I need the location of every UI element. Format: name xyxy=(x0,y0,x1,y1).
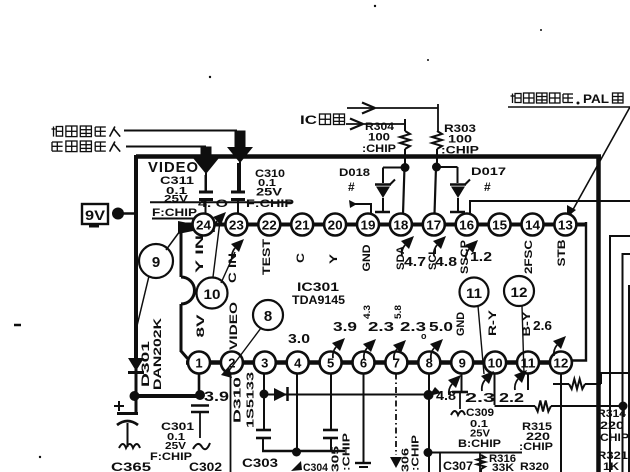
svg-text:1: 1 xyxy=(195,356,202,371)
svg-text:C304: C304 xyxy=(303,462,329,472)
svg-text:C: C xyxy=(295,253,307,263)
svg-text:9: 9 xyxy=(152,254,160,271)
svg-text:3: 3 xyxy=(261,356,268,371)
svg-text:24: 24 xyxy=(196,218,212,233)
svg-text::CHIP: :CHIP xyxy=(519,441,553,453)
svg-text:18: 18 xyxy=(393,218,408,233)
svg-text:5.8: 5.8 xyxy=(393,305,403,319)
svg-text:4.8: 4.8 xyxy=(435,255,457,269)
svg-text:17: 17 xyxy=(426,218,441,233)
svg-text:20: 20 xyxy=(328,218,343,233)
svg-text:4.7: 4.7 xyxy=(404,255,426,269)
svg-text:15: 15 xyxy=(492,218,507,233)
svg-text:11: 11 xyxy=(466,285,482,301)
svg-text:23: 23 xyxy=(229,218,244,233)
svg-text:10: 10 xyxy=(204,286,221,302)
svg-text:C307: C307 xyxy=(443,459,473,472)
svg-text:21: 21 xyxy=(295,218,310,233)
svg-text:Y IN: Y IN xyxy=(194,235,206,273)
svg-text:D017: D017 xyxy=(471,166,506,178)
svg-text:3.0: 3.0 xyxy=(288,332,310,346)
svg-text:2.6: 2.6 xyxy=(533,319,552,333)
svg-text:R-Y: R-Y xyxy=(487,309,499,336)
svg-text:2.3: 2.3 xyxy=(368,320,394,334)
svg-text::CHIP: :CHIP xyxy=(411,435,422,471)
svg-text:GND: GND xyxy=(361,244,373,271)
svg-text:F:CHIP: F:CHIP xyxy=(150,451,192,463)
svg-text:2FSC: 2FSC xyxy=(523,240,535,274)
svg-text:3.9: 3.9 xyxy=(333,320,357,334)
svg-text:D018: D018 xyxy=(339,167,370,179)
svg-text:16: 16 xyxy=(459,218,474,233)
svg-text:3.9: 3.9 xyxy=(204,389,229,404)
svg-text:10: 10 xyxy=(488,356,503,371)
svg-text:4: 4 xyxy=(294,356,302,371)
svg-text:14: 14 xyxy=(525,218,541,233)
svg-text:o: o xyxy=(421,331,427,341)
svg-text:1K: 1K xyxy=(603,461,619,472)
svg-text:12: 12 xyxy=(553,356,568,371)
svg-text:2.3: 2.3 xyxy=(465,390,495,405)
svg-text:C302: C302 xyxy=(189,460,222,472)
svg-text::CHIP: :CHIP xyxy=(362,143,396,155)
svg-text:C303: C303 xyxy=(242,456,278,470)
svg-text:R314: R314 xyxy=(597,408,627,420)
svg-text:DAN202K: DAN202K xyxy=(152,318,164,390)
svg-text:D310: D310 xyxy=(233,376,244,423)
svg-text:D301: D301 xyxy=(140,341,152,387)
svg-text:TEST: TEST xyxy=(261,239,273,275)
svg-text:8: 8 xyxy=(426,356,433,371)
svg-text:2.2: 2.2 xyxy=(499,390,524,405)
svg-text:25V: 25V xyxy=(256,187,283,199)
svg-text:33K: 33K xyxy=(492,462,514,472)
svg-text:F:CHIP: F:CHIP xyxy=(152,207,197,219)
svg-text:305: 305 xyxy=(331,445,342,472)
svg-text:8V: 8V xyxy=(195,313,207,337)
svg-text:B:CHIP: B:CHIP xyxy=(458,438,501,450)
svg-text:4.3: 4.3 xyxy=(362,305,372,319)
svg-text:8: 8 xyxy=(264,308,272,325)
svg-text:25V: 25V xyxy=(164,194,188,205)
svg-text:9V: 9V xyxy=(85,207,106,223)
svg-text:12: 12 xyxy=(511,284,528,300)
svg-text:11: 11 xyxy=(521,356,536,371)
svg-text:1S5133: 1S5133 xyxy=(246,371,257,428)
svg-text:100: 100 xyxy=(368,132,390,144)
svg-text:C309: C309 xyxy=(466,407,494,419)
svg-text:VIDEO: VIDEO xyxy=(228,301,240,350)
svg-text:1.2: 1.2 xyxy=(470,250,492,264)
svg-text:#: # xyxy=(484,180,491,194)
svg-text:TDA9145: TDA9145 xyxy=(292,293,345,307)
svg-text:F:CHIP: F:CHIP xyxy=(246,198,294,210)
svg-text::CHIP: :CHIP xyxy=(596,432,629,444)
svg-text:C365: C365 xyxy=(111,460,151,472)
svg-text:STB: STB xyxy=(556,239,568,266)
svg-text::CHIP: :CHIP xyxy=(441,145,479,157)
svg-text:#: # xyxy=(348,180,355,194)
svg-text:13: 13 xyxy=(558,218,573,233)
svg-text:R320: R320 xyxy=(520,461,549,472)
svg-text:IC: IC xyxy=(300,113,317,127)
svg-text:4. O: 4. O xyxy=(198,198,229,210)
svg-text:9: 9 xyxy=(459,356,466,371)
svg-text:220: 220 xyxy=(600,420,624,432)
svg-text:22: 22 xyxy=(262,218,277,233)
svg-text:19: 19 xyxy=(361,218,376,233)
svg-text:VIDEO: VIDEO xyxy=(148,159,199,176)
svg-text:GND: GND xyxy=(455,312,467,336)
svg-text::CHIP: :CHIP xyxy=(342,433,353,471)
svg-text:IC301: IC301 xyxy=(297,280,339,294)
svg-text:5.0: 5.0 xyxy=(429,320,453,334)
svg-text:Y: Y xyxy=(328,253,340,264)
svg-text:PAL: PAL xyxy=(583,92,609,106)
